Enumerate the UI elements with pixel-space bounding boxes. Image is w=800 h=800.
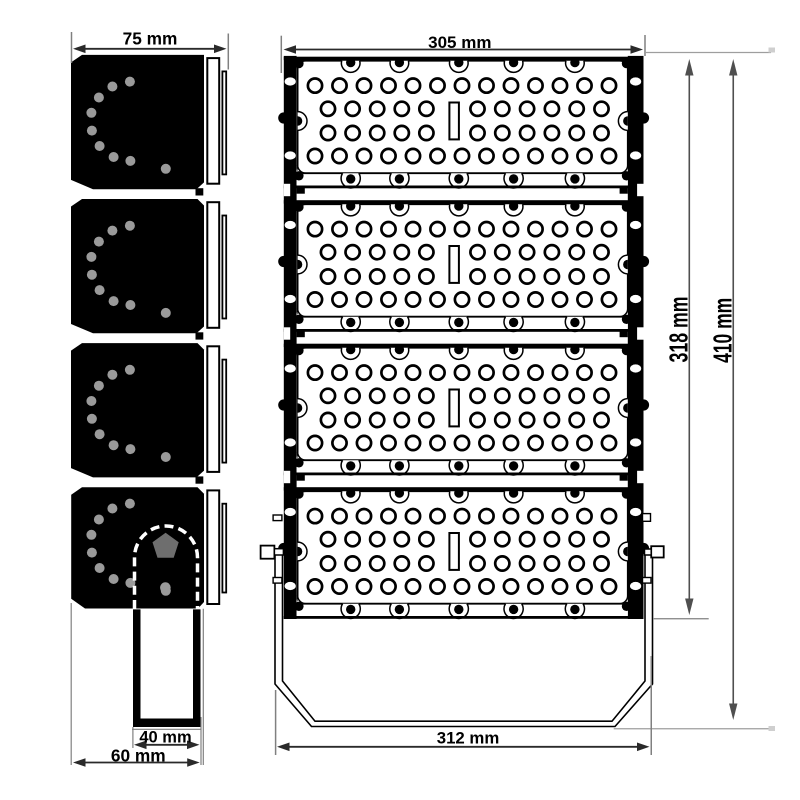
svg-text:75 mm: 75 mm [123,29,178,49]
svg-text:318 mm: 318 mm [664,297,694,363]
svg-text:40 mm: 40 mm [139,729,191,747]
svg-text:60 mm: 60 mm [111,746,166,766]
svg-text:305 mm: 305 mm [428,33,491,52]
svg-text:312 mm: 312 mm [437,728,500,747]
svg-text:410 mm: 410 mm [708,298,738,363]
